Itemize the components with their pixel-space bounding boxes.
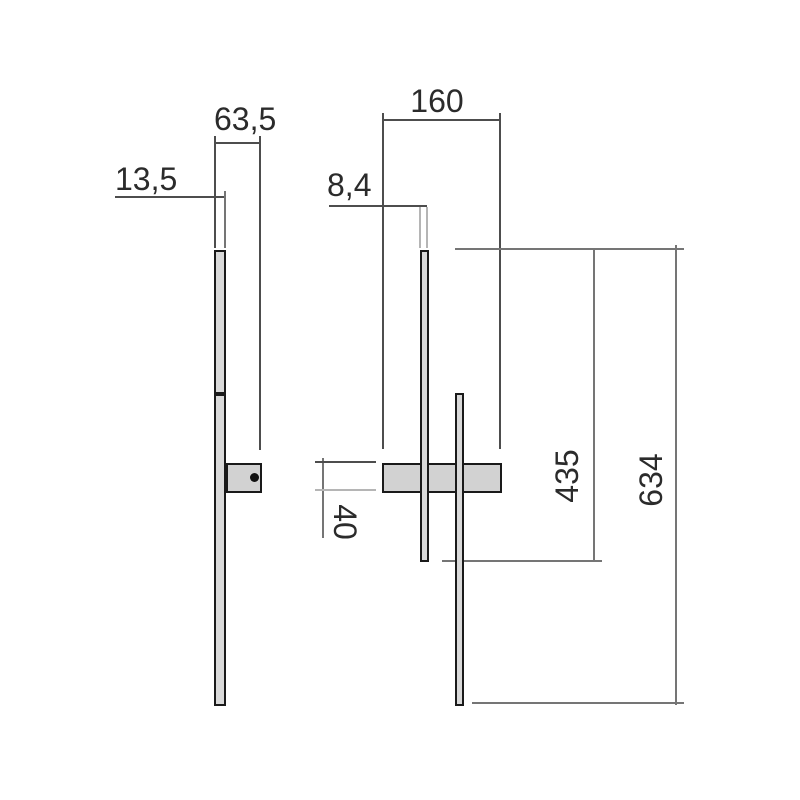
dim-front-width-line (382, 119, 501, 121)
dim-total-height-line (675, 245, 677, 705)
front-view-lower-bar (455, 393, 464, 706)
dim-side-total-depth-ext-right (259, 136, 261, 450)
dim-bracket-height-label: 40 (328, 500, 362, 544)
dim-front-width-label: 160 (406, 84, 468, 118)
dim-top-extension-line (455, 248, 684, 250)
technical-drawing-canvas: 63,5 13,5 160 8,4 40 435 (0, 0, 800, 800)
dim-upper-bar-length-line (593, 248, 595, 562)
dim-bar-width-label: 8,4 (327, 168, 371, 202)
front-view-upper-bar (420, 250, 429, 562)
dim-total-height-label: 634 (634, 452, 668, 508)
dim-side-total-depth-label: 63,5 (214, 102, 276, 136)
dim-bracket-height-tick-bottom (315, 489, 376, 491)
front-view-wall-bracket (382, 463, 502, 493)
dim-front-width-ext-left (382, 113, 384, 449)
dim-bracket-height-line (322, 458, 324, 538)
dim-bar-width-ext-left (419, 207, 421, 248)
dim-upper-bar-length-ext-bottom (442, 560, 602, 562)
dim-side-bar-depth-ext (224, 191, 226, 248)
dim-front-width-ext-right (499, 113, 501, 449)
dim-side-total-depth-line (214, 142, 261, 144)
side-view-lamp-bar (214, 250, 226, 706)
dim-upper-bar-length-label: 435 (550, 448, 584, 504)
dim-bar-width-leader (329, 205, 427, 207)
screw-dot (250, 473, 259, 482)
dim-total-height-ext-bottom (472, 702, 684, 704)
dim-bar-width-ext-right (426, 207, 428, 248)
side-view-bar-joint-line (215, 392, 225, 396)
dim-bracket-height-tick-top (315, 461, 376, 463)
dim-side-bar-depth-label: 13,5 (115, 162, 177, 196)
dim-side-total-depth-ext-left (214, 136, 216, 248)
